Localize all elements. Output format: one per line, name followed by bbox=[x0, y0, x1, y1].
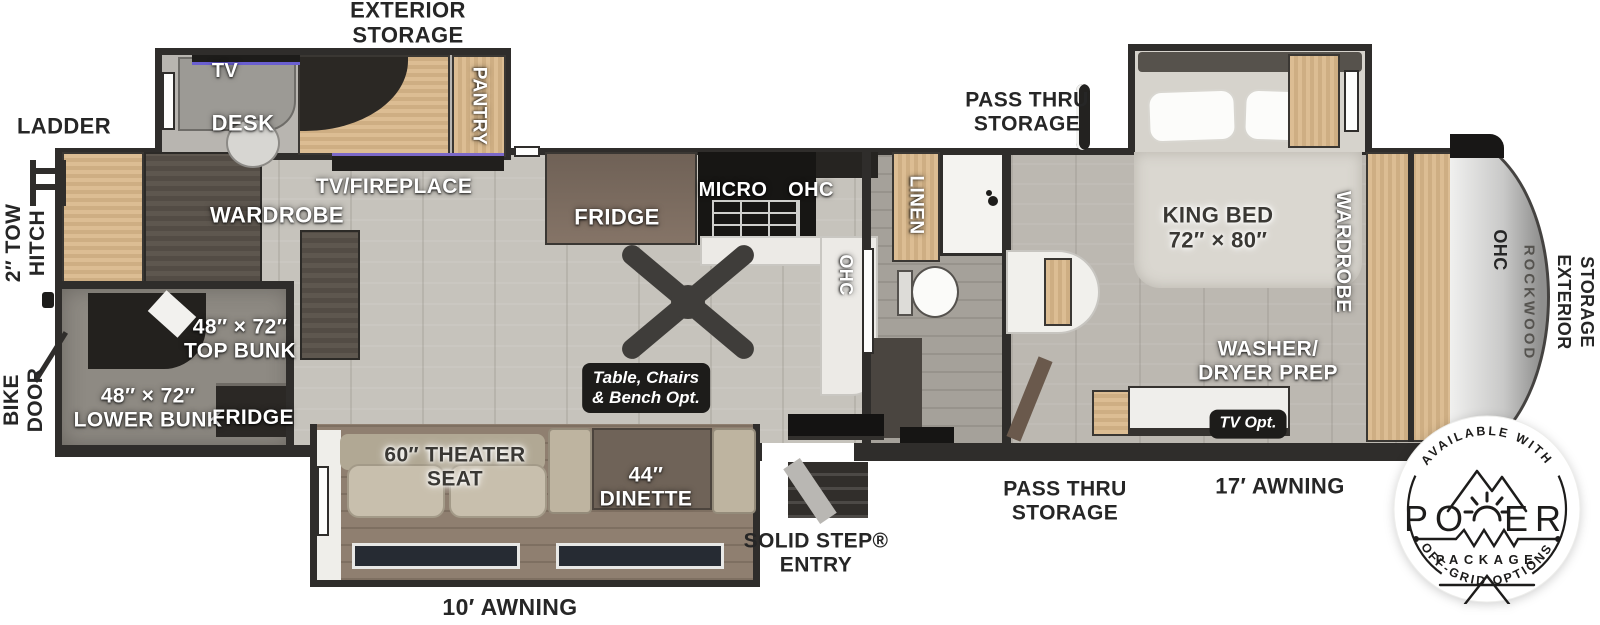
label-exterior-storage-front-2: STORAGE bbox=[1577, 256, 1597, 347]
pillow-left bbox=[1147, 88, 1237, 143]
label-desk: DESK bbox=[212, 112, 275, 137]
desk-window bbox=[162, 72, 175, 130]
bedroom-cabinet-small bbox=[1092, 390, 1130, 436]
dinette-bench-right bbox=[712, 428, 756, 514]
front-cabinet-divider bbox=[1408, 152, 1414, 442]
stabilizer-jack bbox=[900, 427, 954, 443]
dinette-bench-left bbox=[548, 428, 592, 514]
rear-wardrobe-cabinet bbox=[62, 152, 144, 288]
ladder-icon bbox=[30, 160, 66, 206]
label-awning-front: 17′ AWNING bbox=[1215, 475, 1344, 500]
table-option-badge: Table, Chairs & Bench Opt. bbox=[582, 363, 710, 413]
label-bike-door-1: BIKE bbox=[0, 374, 24, 426]
badge-power-right: ER bbox=[1504, 498, 1568, 539]
label-lower-bunk: 48″ × 72″ LOWER BUNK bbox=[74, 384, 223, 431]
label-kitchen-fridge: FRIDGE bbox=[574, 206, 660, 231]
hitch-pin-icon bbox=[42, 292, 54, 308]
label-pantry: PANTRY bbox=[468, 67, 489, 145]
label-linen: LINEN bbox=[905, 176, 926, 235]
entry-opening bbox=[762, 443, 854, 461]
outdoor-griddle bbox=[788, 414, 884, 440]
label-bike-door-2: DOOR bbox=[24, 368, 48, 433]
bedroom-window bbox=[1344, 70, 1359, 132]
label-rockwood-brand: ROCKWOOD bbox=[1520, 245, 1537, 362]
rear-bottom-wall bbox=[55, 445, 317, 457]
slide-floor-window-1 bbox=[352, 543, 520, 569]
bed-wardrobe-cabinet bbox=[1288, 54, 1340, 148]
label-theater-seat: 60″ THEATER SEAT bbox=[384, 443, 525, 490]
top-wall-window-1 bbox=[514, 146, 540, 157]
front-bottom-wall bbox=[752, 443, 1458, 461]
toilet-bowl bbox=[911, 266, 959, 318]
label-wardrobe-rear: WARDROBE bbox=[210, 204, 344, 229]
rv-floorplan: EXTERIOR STORAGE LADDER 2″ TOW HITCH BIK… bbox=[0, 0, 1600, 625]
slide-side-window bbox=[317, 466, 329, 536]
vanity-shelf bbox=[1044, 258, 1072, 326]
tv-option-badge: TV Opt. bbox=[1210, 410, 1287, 439]
label-washer-dryer: WASHER/ DRYER PREP bbox=[1198, 337, 1338, 384]
label-solid-step-entry: SOLID STEP® ENTRY bbox=[744, 529, 889, 576]
label-tv: TV bbox=[212, 60, 238, 82]
badge-package-text: PACKAGE bbox=[1436, 552, 1539, 567]
label-ohc-front: OHC bbox=[1490, 229, 1510, 270]
slide-floor-window-2 bbox=[556, 543, 724, 569]
fireplace-unit bbox=[332, 153, 504, 171]
kitchen-window bbox=[862, 248, 874, 354]
label-tow-hitch-2: HITCH bbox=[26, 210, 50, 276]
label-ohc-counter: OHC bbox=[836, 254, 856, 295]
kitchen-fridge-box bbox=[545, 152, 697, 245]
label-ladder: LADDER bbox=[17, 115, 111, 140]
label-top-bunk: 48″ × 72″ TOP BUNK bbox=[184, 315, 296, 362]
label-pass-thru-bottom: PASS THRU STORAGE bbox=[1003, 477, 1126, 524]
label-wardrobe-bedroom: WARDROBE bbox=[1332, 191, 1354, 313]
bunkroom-wall-top bbox=[62, 281, 294, 289]
label-exterior-storage-front-1: EXTERIOR bbox=[1554, 254, 1574, 349]
label-bunk-fridge: FRIDGE bbox=[212, 406, 294, 430]
showerhead-icon bbox=[988, 196, 998, 206]
front-cap-corner-top bbox=[1450, 134, 1504, 158]
label-awning-rear: 10′ AWNING bbox=[442, 595, 577, 621]
wardrobe-island bbox=[300, 230, 360, 360]
label-exterior-storage-top: EXTERIOR STORAGE bbox=[350, 0, 466, 48]
desk-tv-unit bbox=[192, 55, 300, 65]
label-pass-thru-top: PASS THRU STORAGE bbox=[965, 88, 1088, 135]
label-micro: MICRO bbox=[699, 179, 768, 201]
power-package-badge: AVAILABLE WITH OFF-GRID OPTIONS PO ER PA… bbox=[1392, 414, 1582, 604]
range-grate bbox=[712, 200, 800, 238]
label-tv-fireplace: TV/FIREPLACE bbox=[316, 175, 472, 199]
label-tow-hitch-1: 2″ TOW bbox=[2, 204, 26, 283]
label-ohc-kitchen: OHC bbox=[788, 179, 834, 201]
label-dinette: 44″ DINETTE bbox=[600, 463, 693, 510]
label-king-bed: KING BED 72″ × 80″ bbox=[1163, 203, 1274, 252]
